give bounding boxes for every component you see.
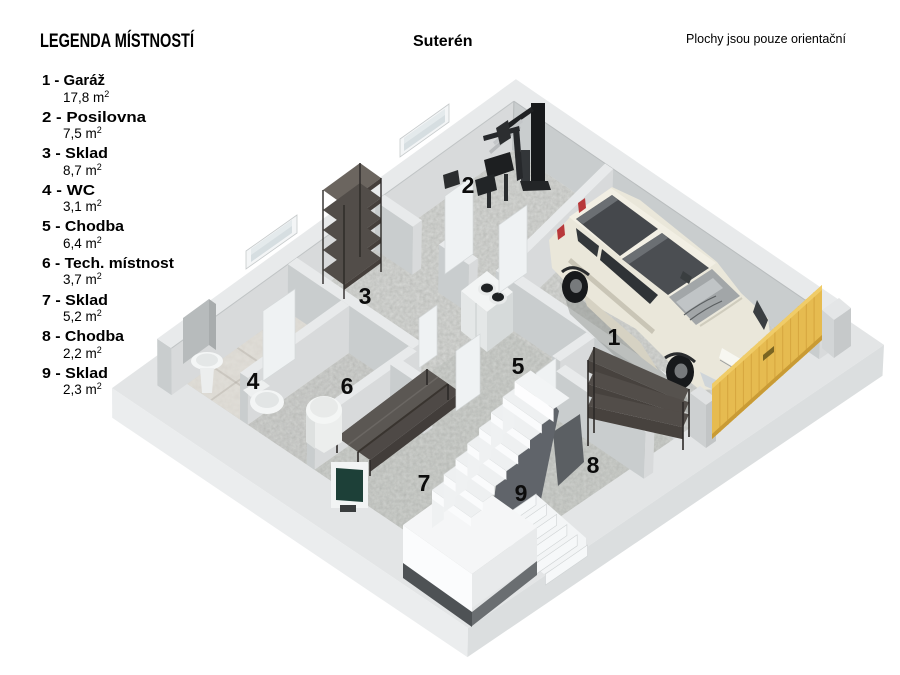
svg-text:5: 5 — [512, 353, 525, 379]
svg-text:8: 8 — [587, 452, 600, 478]
svg-text:7: 7 — [418, 470, 431, 496]
svg-text:Plochy jsou pouze orientační: Plochy jsou pouze orientační — [686, 31, 846, 46]
svg-text:3,7 m2: 3,7 m2 — [63, 271, 102, 287]
svg-text:5,2 m2: 5,2 m2 — [63, 308, 102, 324]
svg-text:Suterén: Suterén — [413, 33, 473, 50]
svg-text:8,7 m2: 8,7 m2 — [63, 162, 102, 178]
svg-text:7,5 m2: 7,5 m2 — [63, 125, 102, 141]
svg-text:2,3 m2: 2,3 m2 — [63, 381, 102, 397]
svg-text:6 - Tech. místnost: 6 - Tech. místnost — [42, 255, 174, 272]
svg-text:9: 9 — [515, 480, 528, 506]
svg-text:LEGENDA MÍSTNOSTÍ: LEGENDA MÍSTNOSTÍ — [40, 30, 195, 52]
svg-text:1: 1 — [608, 324, 621, 350]
svg-text:3,1 m2: 3,1 m2 — [63, 198, 102, 214]
svg-text:5 - Chodba: 5 - Chodba — [42, 218, 125, 235]
svg-text:8 - Chodba: 8 - Chodba — [42, 328, 125, 345]
svg-text:1 - Garáž: 1 - Garáž — [42, 72, 105, 89]
svg-text:2,2 m2: 2,2 m2 — [63, 345, 102, 361]
svg-text:3: 3 — [359, 283, 372, 309]
svg-text:6,4 m2: 6,4 m2 — [63, 235, 102, 251]
svg-text:2: 2 — [462, 172, 475, 198]
svg-text:2 - Posilovna: 2 - Posilovna — [42, 109, 147, 126]
svg-text:4 - WC: 4 - WC — [42, 182, 95, 199]
svg-text:4: 4 — [247, 368, 260, 394]
svg-text:6: 6 — [341, 373, 354, 399]
svg-text:3 - Sklad: 3 - Sklad — [42, 145, 108, 162]
svg-text:9 - Sklad: 9 - Sklad — [42, 365, 108, 382]
svg-text:7 - Sklad: 7 - Sklad — [42, 292, 108, 309]
svg-text:17,8 m2: 17,8 m2 — [63, 89, 109, 105]
